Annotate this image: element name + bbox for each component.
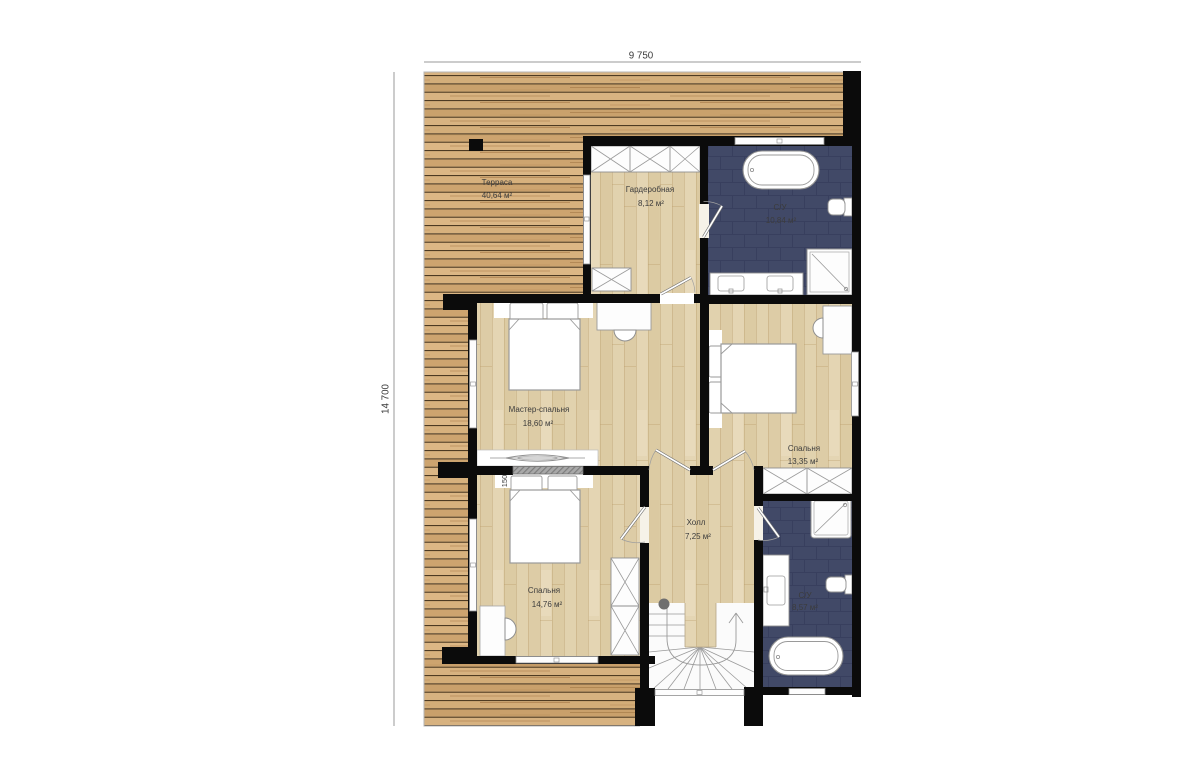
svg-text:13,35 м²: 13,35 м²: [788, 457, 819, 466]
svg-text:8,57 м²: 8,57 м²: [792, 603, 818, 612]
svg-text:8,12 м²: 8,12 м²: [638, 199, 664, 208]
svg-text:Холл: Холл: [687, 518, 706, 527]
svg-text:Мастер-спальня: Мастер-спальня: [509, 405, 570, 414]
svg-text:40,64 м²: 40,64 м²: [482, 191, 513, 200]
svg-text:Спальня: Спальня: [788, 444, 820, 453]
svg-text:14 700: 14 700: [381, 383, 392, 414]
svg-text:С/У: С/У: [773, 203, 787, 212]
svg-text:150: 150: [500, 475, 509, 488]
svg-text:18,60 м²: 18,60 м²: [523, 419, 554, 428]
svg-text:С/У: С/У: [798, 591, 812, 600]
svg-text:10,84 м²: 10,84 м²: [766, 216, 797, 225]
svg-text:Терраса: Терраса: [482, 178, 513, 187]
svg-text:Гардеробная: Гардеробная: [626, 185, 674, 194]
svg-text:14,76 м²: 14,76 м²: [532, 600, 563, 609]
svg-text:9 750: 9 750: [629, 51, 654, 62]
svg-text:7,25 м²: 7,25 м²: [685, 532, 711, 541]
svg-text:Спальня: Спальня: [528, 586, 560, 595]
